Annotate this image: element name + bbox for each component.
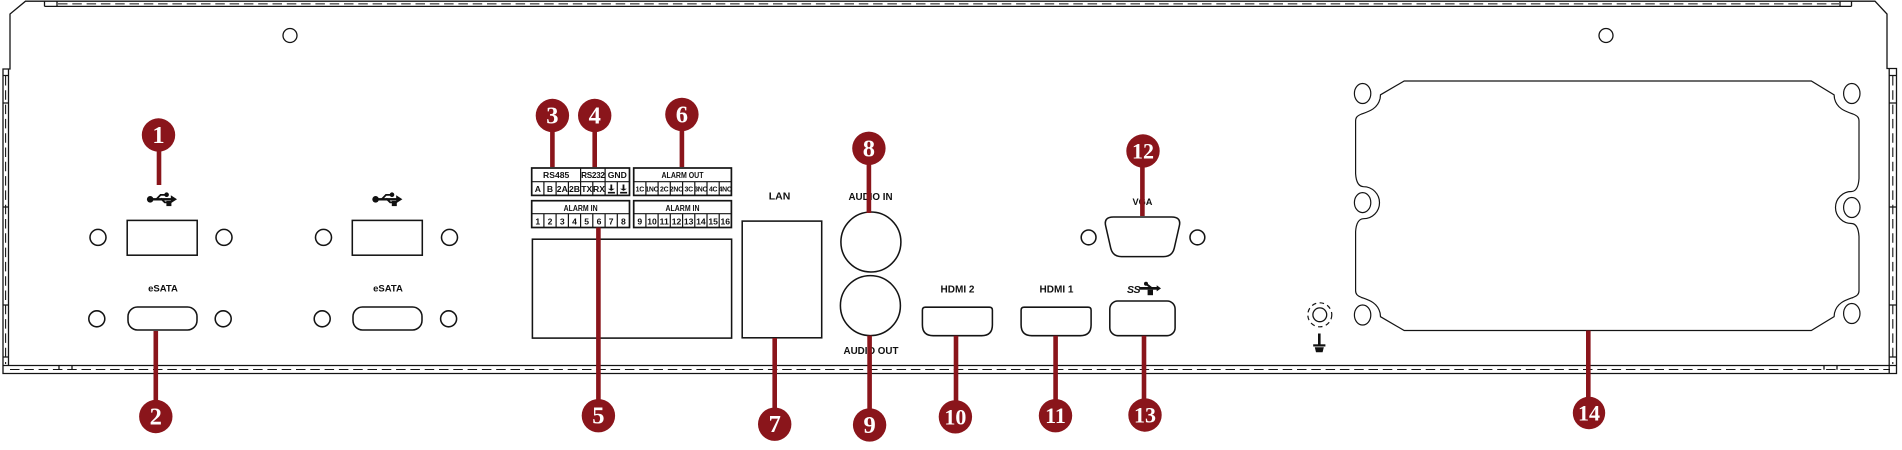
svg-text:13: 13 [1134,403,1156,428]
svg-text:2NO: 2NO [670,187,684,194]
svg-text:HDMI 1: HDMI 1 [1040,285,1074,296]
svg-text:9: 9 [863,412,875,439]
svg-text:11: 11 [1045,403,1066,428]
svg-text:15: 15 [708,216,718,226]
svg-text:A: A [535,184,541,194]
svg-text:13: 13 [684,216,694,226]
svg-text:6: 6 [676,101,688,128]
svg-text:ALARM IN: ALARM IN [564,203,598,213]
svg-text:RS232: RS232 [581,171,605,180]
svg-text:eSATA: eSATA [148,284,178,295]
svg-text:12: 12 [1132,139,1154,164]
svg-text:16: 16 [721,216,731,226]
svg-text:1: 1 [535,216,540,226]
svg-text:2C: 2C [660,187,669,194]
svg-text:7: 7 [609,216,614,226]
svg-text:ALARM OUT: ALARM OUT [662,170,705,180]
svg-text:5: 5 [584,216,589,226]
svg-text:ALARM IN: ALARM IN [666,203,700,213]
svg-text:14: 14 [1578,401,1600,426]
svg-text:TX: TX [581,184,592,194]
svg-text:6: 6 [597,216,602,226]
svg-text:12: 12 [672,216,682,226]
svg-text:GND: GND [608,170,627,180]
svg-text:2: 2 [150,404,162,431]
svg-text:7: 7 [769,411,781,438]
svg-text:2B: 2B [569,184,580,194]
svg-text:1NO: 1NO [645,187,659,194]
svg-text:2: 2 [548,216,553,226]
svg-text:3NO: 3NO [694,187,708,194]
svg-text:LAN: LAN [769,191,791,203]
svg-text:14: 14 [696,216,706,226]
svg-text:4: 4 [589,103,601,130]
svg-text:HDMI 2: HDMI 2 [941,285,975,296]
svg-text:RS485: RS485 [543,170,569,180]
svg-text:3: 3 [560,216,565,226]
svg-text:5: 5 [592,403,604,430]
svg-text:RX: RX [593,184,605,194]
svg-text:10: 10 [944,404,966,429]
svg-text:9: 9 [637,216,642,226]
svg-text:8: 8 [863,135,875,162]
svg-text:1: 1 [152,122,164,149]
svg-text:10: 10 [647,216,657,226]
svg-text:eSATA: eSATA [373,284,403,295]
svg-text:1C: 1C [636,187,645,194]
svg-text:B: B [547,184,553,194]
svg-text:3: 3 [546,103,558,130]
svg-text:4: 4 [572,216,577,226]
svg-text:4C: 4C [709,187,718,194]
svg-text:8: 8 [621,216,626,226]
svg-text:3C: 3C [685,187,694,194]
svg-text:11: 11 [660,216,669,226]
svg-text:2A: 2A [557,184,568,194]
svg-text:SS: SS [1127,284,1141,296]
svg-text:4NO: 4NO [719,187,733,194]
